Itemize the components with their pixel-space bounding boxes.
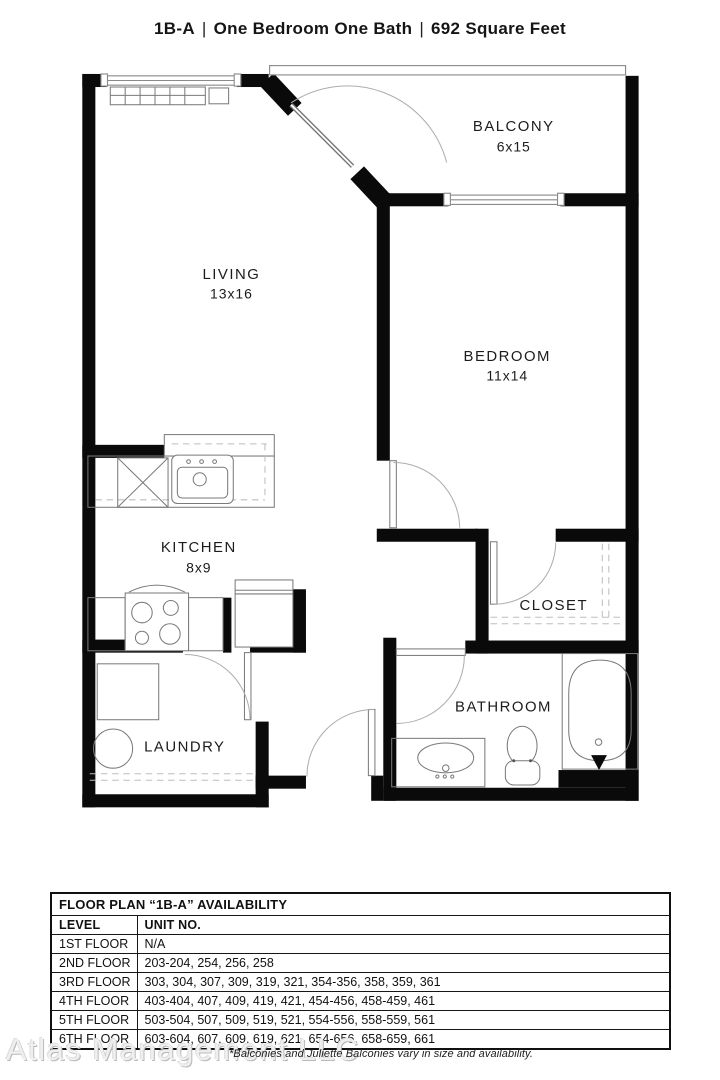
laundry-door-arc — [185, 655, 250, 720]
dims-living: 13x16 — [210, 286, 253, 302]
level-cell: 1ST FLOOR — [51, 935, 137, 954]
level-cell: 4TH FLOOR — [51, 992, 137, 1011]
wall-closet-south — [476, 641, 639, 654]
wall-entry-hinge — [371, 776, 383, 801]
wall-counter-end-stub — [223, 598, 231, 653]
units-cell: 303, 304, 307, 309, 319, 321, 354-356, 3… — [137, 973, 670, 992]
col-header-units: UNIT NO. — [137, 916, 670, 935]
table-row: 5TH FLOOR 503-504, 507, 509, 519, 521, 5… — [51, 1011, 670, 1030]
wall-bathroom-south — [383, 788, 638, 801]
dims-balcony: 6x15 — [497, 138, 531, 154]
dims-bedroom: 11x14 — [486, 368, 528, 384]
wall-left — [82, 74, 95, 807]
wall-entry-north — [256, 776, 306, 789]
balcony-disclaimer-note: *Balconies and Juliette Balconies vary i… — [229, 1048, 533, 1060]
label-closet: CLOSET — [520, 598, 589, 614]
bathroom-door-leaf — [396, 649, 465, 656]
window-cap — [558, 193, 565, 205]
table-row: 1ST FLOOR N/A — [51, 935, 670, 954]
units-cell: N/A — [137, 935, 670, 954]
label-bedroom: BEDROOM — [464, 349, 551, 365]
label-kitchen: KITCHEN — [161, 540, 237, 556]
wall-diagonal-upper — [267, 80, 295, 110]
entry-door-arc — [307, 709, 374, 776]
wall-bedroom-west — [377, 193, 390, 460]
washer-icon — [97, 664, 159, 720]
wall-bathroom-north-stub — [465, 641, 475, 654]
toilet-icon — [505, 726, 539, 785]
wall-bottom — [82, 794, 268, 807]
units-cell: 203-204, 254, 256, 258 — [137, 954, 670, 973]
bedroom-door-arc — [394, 463, 460, 528]
wall-bathroom-west — [383, 638, 396, 801]
wall-bedroom-north-left — [381, 193, 448, 206]
table-row: 3RD FLOOR 303, 304, 307, 309, 319, 321, … — [51, 973, 670, 992]
title-separator: | — [419, 19, 424, 38]
floor-plan-drawing: LIVING 13x16 BEDROOM 11x14 BALCONY 6x15 … — [0, 60, 720, 880]
label-laundry: LAUNDRY — [144, 739, 225, 755]
window-cap — [444, 193, 451, 205]
plan-area: 692 Square Feet — [431, 19, 566, 38]
kitchen-sink-icon — [172, 455, 234, 503]
walls — [82, 74, 638, 807]
level-cell: 3RD FLOOR — [51, 973, 137, 992]
wall-closet-west — [476, 529, 489, 654]
balcony-door-arc — [291, 86, 447, 163]
col-header-level: LEVEL — [51, 916, 137, 935]
page-title: 1B-A|One Bedroom One Bath|692 Square Fee… — [0, 19, 720, 39]
plan-code: 1B-A — [154, 19, 195, 38]
table-row: 4TH FLOOR 403-404, 407, 409, 419, 421, 4… — [51, 992, 670, 1011]
closet-door-leaf — [490, 542, 497, 604]
laundry-door-leaf — [244, 653, 251, 720]
window-cap — [234, 74, 241, 86]
title-separator: | — [202, 19, 207, 38]
window-cap — [101, 74, 108, 86]
tub-faucet-icon — [591, 755, 607, 770]
wall-right — [626, 76, 639, 801]
availability-table-title: FLOOR PLAN “1B-A” AVAILABILITY — [51, 893, 670, 916]
table-row: 2ND FLOOR 203-204, 254, 256, 258 — [51, 954, 670, 973]
level-cell: 2ND FLOOR — [51, 954, 137, 973]
closet-door-arc — [494, 543, 556, 605]
label-balcony: BALCONY — [473, 119, 555, 135]
wall-closet-north — [556, 529, 639, 542]
label-bathroom: BATHROOM — [455, 699, 552, 715]
units-cell: 403-404, 407, 409, 419, 421, 454-456, 45… — [137, 992, 670, 1011]
availability-table: FLOOR PLAN “1B-A” AVAILABILITY LEVEL UNI… — [50, 892, 671, 1050]
plan-description: One Bedroom One Bath — [214, 19, 413, 38]
dryer-icon — [94, 729, 133, 768]
label-living: LIVING — [203, 267, 261, 283]
wall-fridge-stub — [293, 589, 306, 652]
balcony-railing — [270, 66, 626, 75]
level-cell: 5TH FLOOR — [51, 1011, 137, 1030]
bedroom-door-leaf — [390, 461, 397, 528]
heater-icon — [110, 87, 228, 105]
units-cell: 503-504, 507, 509, 519, 521, 554-556, 55… — [137, 1011, 670, 1030]
dims-kitchen: 8x9 — [186, 560, 211, 576]
wall-under-tub — [558, 770, 638, 788]
entry-door-leaf — [368, 709, 375, 775]
refrigerator-icon — [235, 580, 293, 647]
wall-bedroom-south — [377, 529, 478, 542]
bathroom-vanity-icon — [392, 738, 485, 786]
